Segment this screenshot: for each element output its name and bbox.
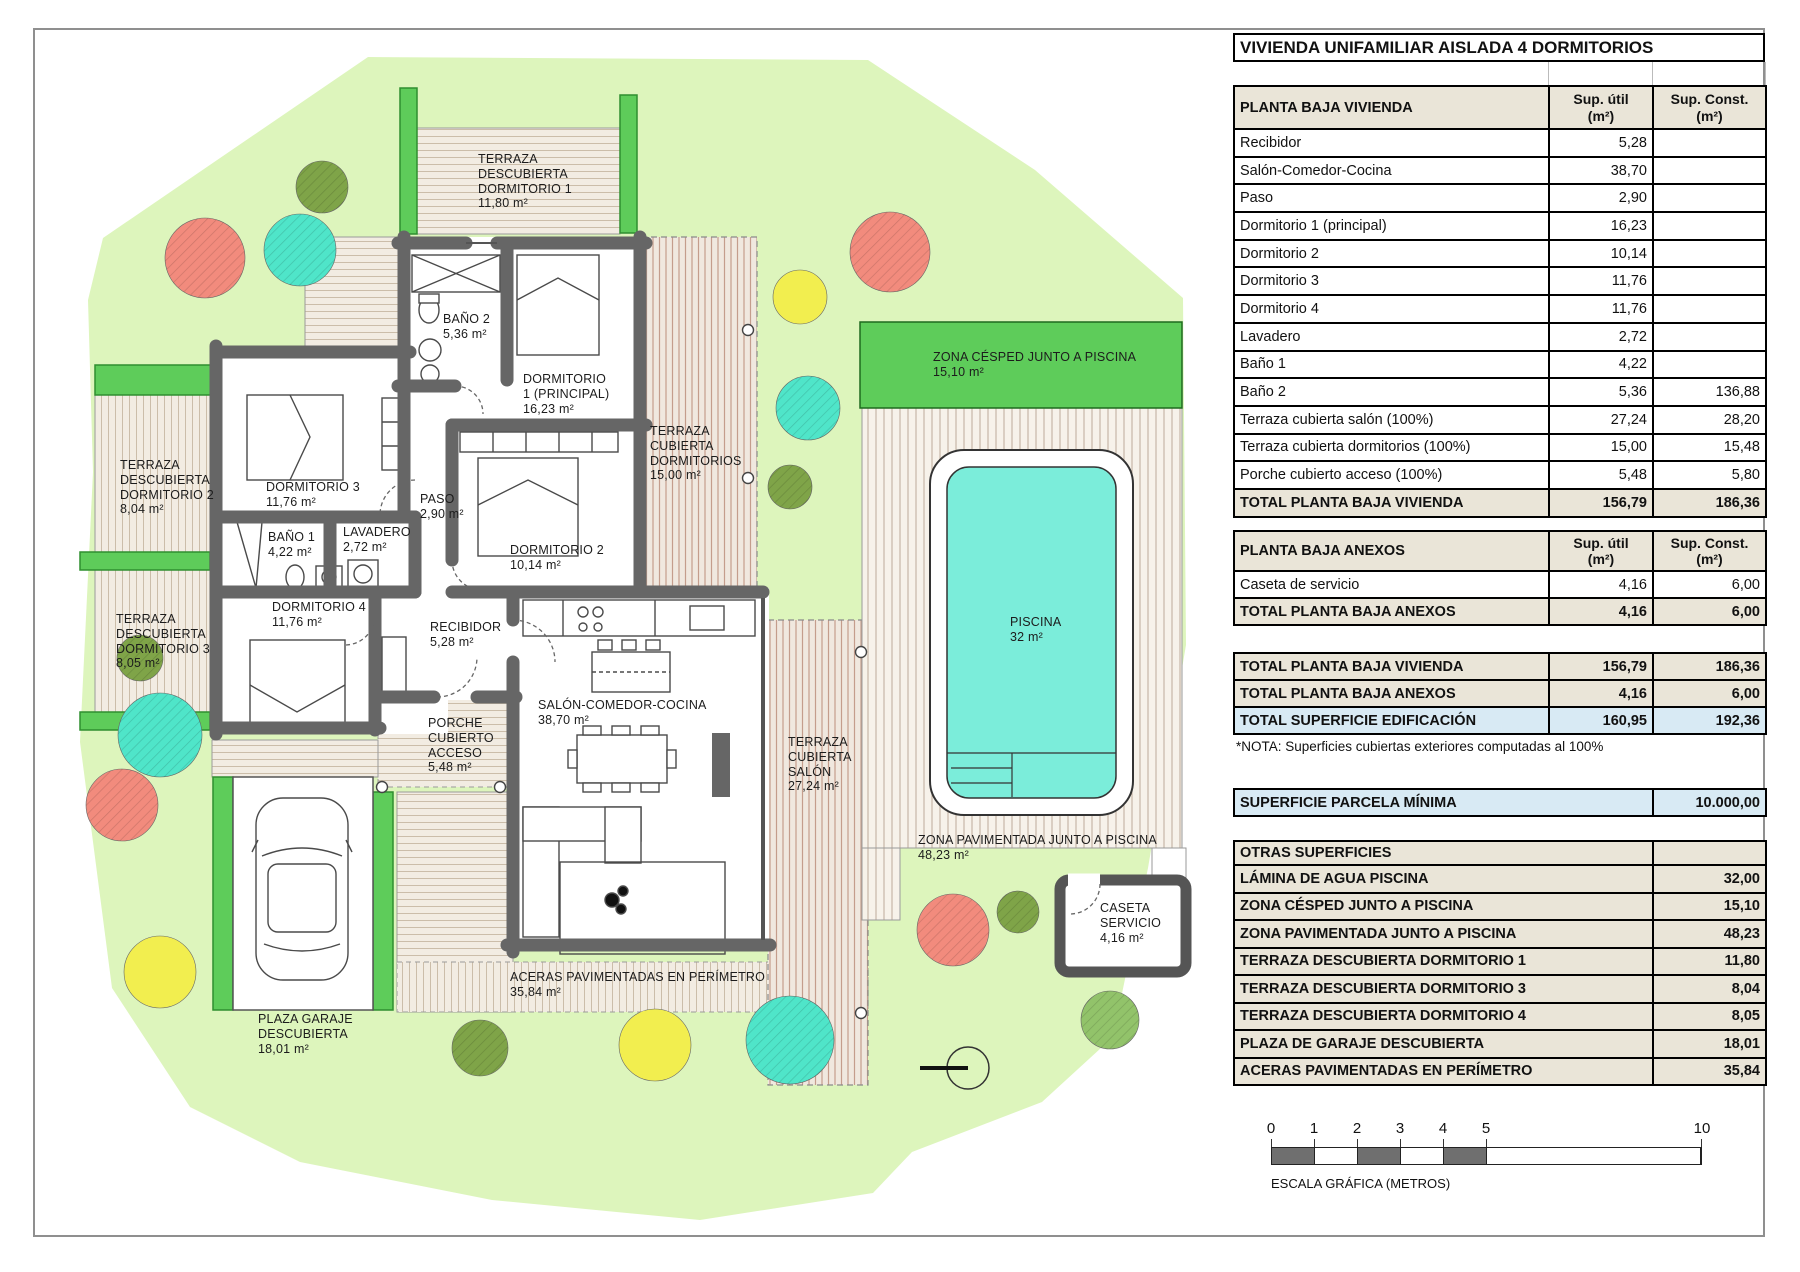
row-util: 4,16 xyxy=(1549,571,1653,598)
row-label: Baño 1 xyxy=(1234,351,1549,379)
row-label: TERRAZA DESCUBIERTA DORMITORIO 4 xyxy=(1234,1003,1653,1031)
row-value: 8,04 xyxy=(1653,975,1766,1003)
scale-tick-3: 3 xyxy=(1396,1120,1404,1137)
label-zona-cesped: ZONA CÉSPED JUNTO A PISCINA 15,10 m² xyxy=(933,350,1136,380)
t1-total-label: TOTAL PLANTA BAJA VIVIENDA xyxy=(1234,489,1549,517)
row-label: PLAZA DE GARAJE DESCUBIERTA xyxy=(1234,1030,1653,1058)
row-const xyxy=(1653,267,1766,295)
scale-tick-1: 1 xyxy=(1310,1120,1318,1137)
row-const xyxy=(1653,129,1766,157)
row-const: 5,80 xyxy=(1653,461,1766,489)
row-label: Porche cubierto acceso (100%) xyxy=(1234,461,1549,489)
t1-total-const: 186,36 xyxy=(1653,489,1766,517)
row-label: Terraza cubierta dormitorios (100%) xyxy=(1234,434,1549,462)
row-const xyxy=(1653,212,1766,240)
row-util: 160,95 xyxy=(1549,707,1653,734)
row-util: 11,76 xyxy=(1549,267,1653,295)
scale-bar-segments xyxy=(1271,1147,1702,1165)
table-planta-baja-vivienda: PLANTA BAJA VIVIENDA Sup. útil (m²) Sup.… xyxy=(1233,85,1767,518)
row-label: Dormitorio 1 (principal) xyxy=(1234,212,1549,240)
row-label: ZONA CÉSPED JUNTO A PISCINA xyxy=(1234,893,1653,921)
row-const xyxy=(1653,351,1766,379)
scale-tick-2: 2 xyxy=(1353,1120,1361,1137)
label-porche: PORCHE CUBIERTO ACCESO 5,48 m² xyxy=(428,716,494,775)
label-paso: PASO 2,90 m² xyxy=(420,492,464,522)
row-util: 27,24 xyxy=(1549,406,1653,434)
row-value: 18,01 xyxy=(1653,1030,1766,1058)
label-terraza-descubierta-dormitorio2: TERRAZA DESCUBIERTA DORMITORIO 2 8,04 m² xyxy=(120,458,214,517)
row-value: 48,23 xyxy=(1653,920,1766,948)
parcela-value: 10.000,00 xyxy=(1653,789,1766,816)
row-label: Recibidor xyxy=(1234,129,1549,157)
row-label: Salón-Comedor-Cocina xyxy=(1234,157,1549,185)
row-value: 8,05 xyxy=(1653,1003,1766,1031)
scale-tick-5: 5 xyxy=(1482,1120,1490,1137)
scale-caption: ESCALA GRÁFICA (METROS) xyxy=(1271,1176,1450,1191)
label-banio1: BAÑO 1 4,22 m² xyxy=(268,530,315,560)
row-const: 6,00 xyxy=(1653,680,1766,707)
label-terraza-descubierta-dormitorio1: TERRAZA DESCUBIERTA DORMITORIO 1 11,80 m… xyxy=(478,152,572,211)
label-lavadero: LAVADERO 2,72 m² xyxy=(343,525,411,555)
row-label: Lavadero xyxy=(1234,323,1549,351)
row-label: Paso xyxy=(1234,184,1549,212)
label-plaza-garaje: PLAZA GARAJE DESCUBIERTA 18,01 m² xyxy=(258,1012,353,1056)
t2-total-label: TOTAL PLANTA BAJA ANEXOS xyxy=(1234,598,1549,625)
row-util: 4,22 xyxy=(1549,351,1653,379)
row-label: LÁMINA DE AGUA PISCINA xyxy=(1234,865,1653,893)
label-dormitorio3: DORMITORIO 3 11,76 m² xyxy=(266,480,360,510)
t2-col-util: Sup. útil (m²) xyxy=(1549,531,1653,571)
t2-total-const: 6,00 xyxy=(1653,598,1766,625)
scale-bar: 0 1 2 3 4 5 10 ESCALA GRÁFICA (METROS) xyxy=(1271,1120,1702,1196)
table-parcela-minima: SUPERFICIE PARCELA MÍNIMA10.000,00 xyxy=(1233,788,1767,817)
label-terraza-cubierta-salon: TERRAZA CUBIERTA SALÓN 27,24 m² xyxy=(788,735,852,794)
label-dormitorio4: DORMITORIO 4 11,76 m² xyxy=(272,600,366,630)
row-value: 15,10 xyxy=(1653,893,1766,921)
row-const xyxy=(1653,184,1766,212)
row-util: 4,16 xyxy=(1549,680,1653,707)
parcela-label: SUPERFICIE PARCELA MÍNIMA xyxy=(1234,789,1653,816)
row-label: TOTAL SUPERFICIE EDIFICACIÓN xyxy=(1234,707,1549,734)
row-const: 15,48 xyxy=(1653,434,1766,462)
nota-text: *NOTA: Superficies cubiertas exteriores … xyxy=(1236,739,1603,754)
row-const: 6,00 xyxy=(1653,571,1766,598)
row-util: 10,14 xyxy=(1549,240,1653,268)
t2-col-const: Sup. Const. (m²) xyxy=(1653,531,1766,571)
otras-header: OTRAS SUPERFICIES xyxy=(1234,841,1653,865)
t2-total-util: 4,16 xyxy=(1549,598,1653,625)
label-recibidor: RECIBIDOR 5,28 m² xyxy=(430,620,501,650)
label-caseta-servicio: CASETA SERVICIO 4,16 m² xyxy=(1100,901,1161,945)
row-util: 2,90 xyxy=(1549,184,1653,212)
t2-header: PLANTA BAJA ANEXOS xyxy=(1234,531,1549,571)
label-aceras: ACERAS PAVIMENTADAS EN PERÍMETRO 35,84 m… xyxy=(510,970,765,1000)
label-piscina: PISCINA 32 m² xyxy=(1010,615,1061,645)
table-planta-baja-anexos: PLANTA BAJA ANEXOS Sup. útil (m²) Sup. C… xyxy=(1233,530,1767,626)
row-label: Dormitorio 3 xyxy=(1234,267,1549,295)
row-label: ACERAS PAVIMENTADAS EN PERÍMETRO xyxy=(1234,1058,1653,1086)
row-const: 186,36 xyxy=(1653,653,1766,680)
row-const: 192,36 xyxy=(1653,707,1766,734)
row-value: 35,84 xyxy=(1653,1058,1766,1086)
plan-sheet: { "title": "VIVIENDA UNIFAMILIAR AISLADA… xyxy=(0,0,1800,1272)
row-value: 32,00 xyxy=(1653,865,1766,893)
label-banio2: BAÑO 2 5,36 m² xyxy=(443,312,490,342)
row-const: 28,20 xyxy=(1653,406,1766,434)
scale-tick-10: 10 xyxy=(1694,1120,1711,1137)
row-const xyxy=(1653,323,1766,351)
row-const xyxy=(1653,157,1766,185)
row-label: ZONA PAVIMENTADA JUNTO A PISCINA xyxy=(1234,920,1653,948)
row-util: 15,00 xyxy=(1549,434,1653,462)
table-otras-superficies: OTRAS SUPERFICIES LÁMINA DE AGUA PISCINA… xyxy=(1233,840,1767,1086)
row-const xyxy=(1653,295,1766,323)
t1-col-util: Sup. útil (m²) xyxy=(1549,86,1653,129)
row-label: TOTAL PLANTA BAJA VIVIENDA xyxy=(1234,653,1549,680)
row-label: Dormitorio 2 xyxy=(1234,240,1549,268)
scale-tick-4: 4 xyxy=(1439,1120,1447,1137)
row-const xyxy=(1653,240,1766,268)
row-label: Baño 2 xyxy=(1234,378,1549,406)
row-util: 11,76 xyxy=(1549,295,1653,323)
row-label: TOTAL PLANTA BAJA ANEXOS xyxy=(1234,680,1549,707)
t1-header: PLANTA BAJA VIVIENDA xyxy=(1234,86,1549,129)
row-const: 136,88 xyxy=(1653,378,1766,406)
row-util: 2,72 xyxy=(1549,323,1653,351)
label-salon: SALÓN-COMEDOR-COCINA 38,70 m² xyxy=(538,698,707,728)
t1-col-const: Sup. Const. (m²) xyxy=(1653,86,1766,129)
row-util: 156,79 xyxy=(1549,653,1653,680)
row-value: 11,80 xyxy=(1653,948,1766,976)
row-label: Dormitorio 4 xyxy=(1234,295,1549,323)
row-util: 5,28 xyxy=(1549,129,1653,157)
row-util: 5,48 xyxy=(1549,461,1653,489)
otras-header-empty xyxy=(1653,841,1766,865)
row-util: 16,23 xyxy=(1549,212,1653,240)
header-gap-cells xyxy=(1548,62,1765,86)
scale-tick-0: 0 xyxy=(1267,1120,1275,1137)
table-totales: TOTAL PLANTA BAJA VIVIENDA156,79186,36 T… xyxy=(1233,652,1767,735)
t1-total-util: 156,79 xyxy=(1549,489,1653,517)
label-zona-pavimentada: ZONA PAVIMENTADA JUNTO A PISCINA 48,23 m… xyxy=(918,833,1157,863)
row-label: TERRAZA DESCUBIERTA DORMITORIO 3 xyxy=(1234,975,1653,1003)
row-util: 5,36 xyxy=(1549,378,1653,406)
label-terraza-descubierta-dormitorio3: TERRAZA DESCUBIERTA DORMITORIO 3 8,05 m² xyxy=(116,612,210,671)
sheet-title: VIVIENDA UNIFAMILIAR AISLADA 4 DORMITORI… xyxy=(1233,33,1765,62)
row-label: Caseta de servicio xyxy=(1234,571,1549,598)
row-util: 38,70 xyxy=(1549,157,1653,185)
label-dormitorio1: DORMITORIO 1 (PRINCIPAL) 16,23 m² xyxy=(523,372,609,416)
row-label: Terraza cubierta salón (100%) xyxy=(1234,406,1549,434)
label-dormitorio2: DORMITORIO 2 10,14 m² xyxy=(510,543,604,573)
row-label: TERRAZA DESCUBIERTA DORMITORIO 1 xyxy=(1234,948,1653,976)
label-terraza-cubierta-dormitorios: TERRAZA CUBIERTA DORMITORIOS 15,00 m² xyxy=(650,424,742,483)
